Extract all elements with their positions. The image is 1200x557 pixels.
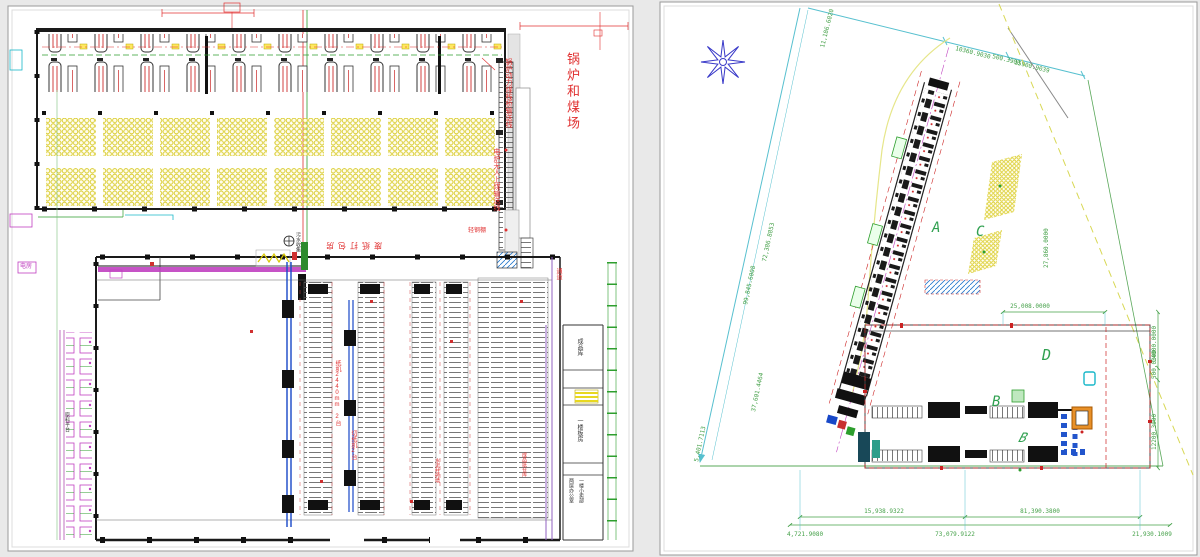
- dim-south-b2: 73,079.9122: [935, 531, 975, 538]
- zone-label-c: C: [976, 224, 985, 240]
- paper-machine-line-2: [344, 300, 356, 512]
- dim-south-a1: 15,938.9322: [864, 508, 904, 515]
- cad-workspace: 10360.9030 500.3900 15900.9039 11,186.60…: [0, 0, 1200, 557]
- right-drawing-sheet: 10360.9030 500.3900 15900.9039 11,186.60…: [660, 2, 1197, 555]
- dim-south-b1: 4,721.9080: [787, 531, 824, 538]
- dim-east-3: 12200.3000: [1151, 413, 1158, 450]
- zone-label-a: A: [931, 220, 940, 236]
- drawing-canvas: 10360.9030 500.3900 15900.9039 11,186.60…: [0, 0, 1200, 557]
- zone-label-d: D: [1041, 346, 1051, 364]
- dim-east-2: 500.0300: [1151, 350, 1158, 379]
- hatched-platform: [925, 280, 980, 294]
- dim-south-a2: 81,390.3800: [1020, 508, 1060, 515]
- dim-d-width: 25,008.0000: [1010, 303, 1050, 310]
- green-tank: [1012, 390, 1024, 402]
- dim-c-east: 27,860.0000: [1043, 228, 1050, 268]
- zone-label-b: B: [992, 394, 1000, 410]
- left-drawing-sheet: [8, 3, 633, 551]
- dim-south-b3: 21,930.1009: [1132, 531, 1172, 538]
